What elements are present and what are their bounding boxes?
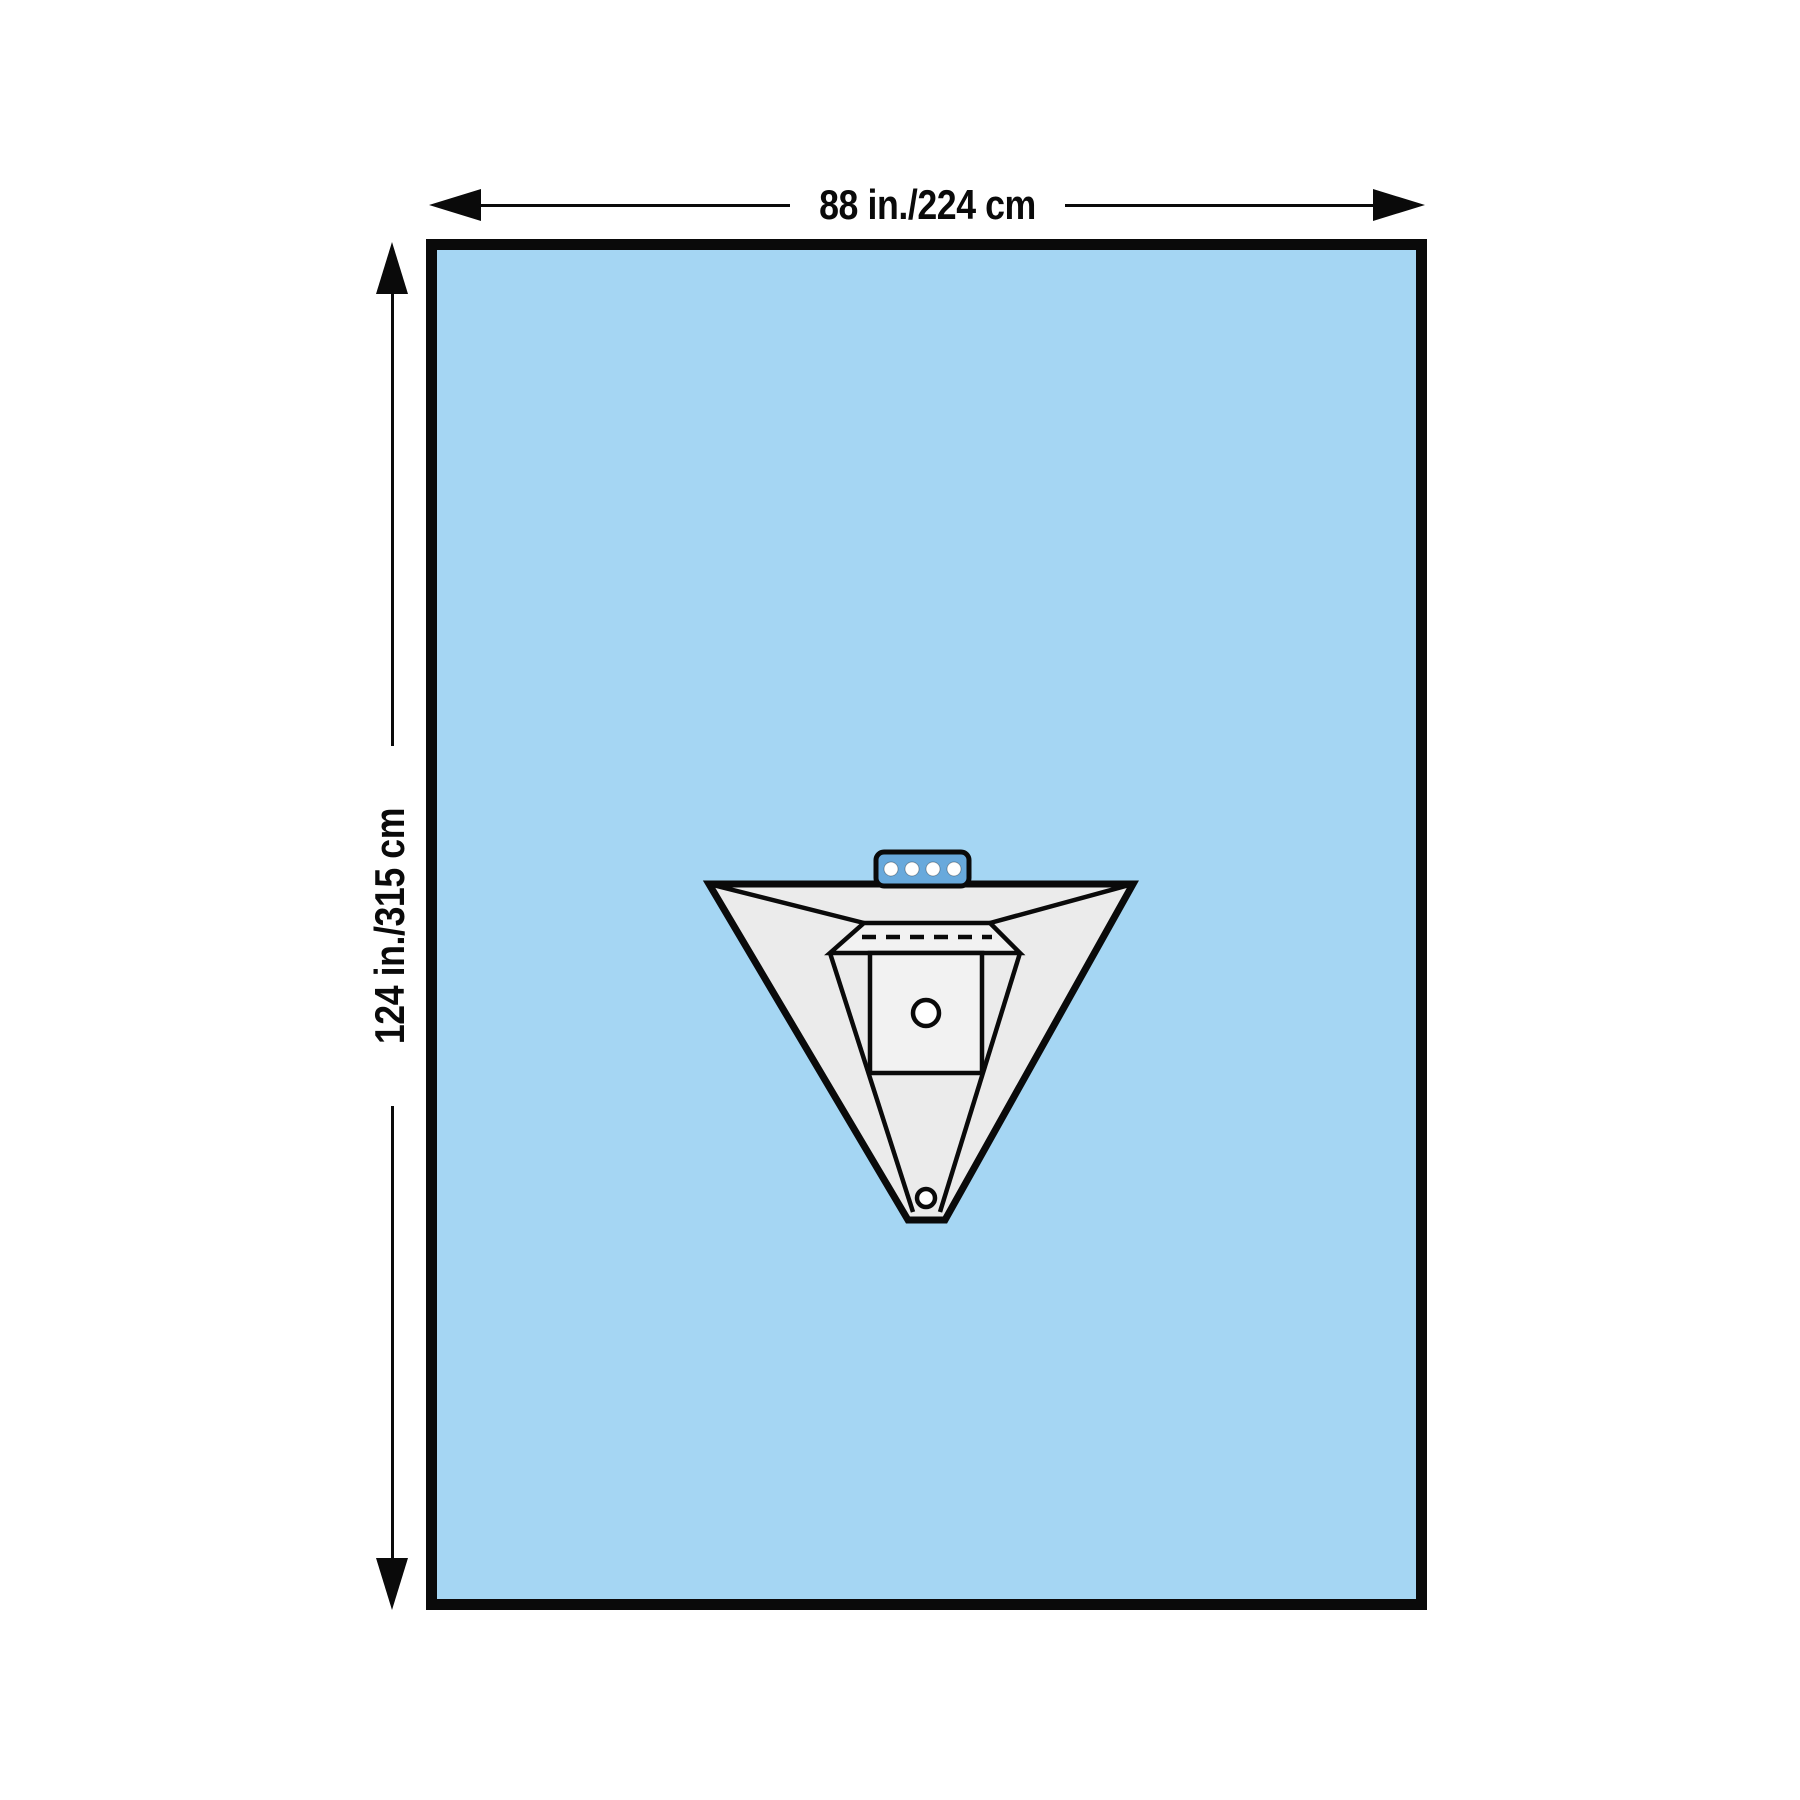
height-dimension-label: 124 in./315 cm [374,746,410,1106]
tab-hole-icon [905,862,919,876]
dimension-line [1065,204,1374,207]
arrow-right-icon [1373,189,1425,221]
fluid-collection-pouch [680,835,1150,1230]
arrow-down-icon [376,1558,408,1610]
drain-port-icon [917,1189,935,1207]
arrow-up-icon [376,242,408,294]
tab-hole-icon [926,862,940,876]
fenestration-hole-icon [913,1000,939,1026]
diagram-canvas: 88 in./224 cm 124 in./315 cm [0,0,1800,1800]
dimension-line [481,204,790,207]
width-dimension-text: 88 in./224 cm [819,185,1036,225]
tab-hole-icon [884,862,898,876]
dimension-line [391,1106,394,1558]
width-dimension-label: 88 in./224 cm [790,185,1065,225]
arrow-left-icon [429,189,481,221]
height-dimension: 124 in./315 cm [374,242,410,1610]
dimension-line [391,294,394,746]
height-dimension-text: 124 in./315 cm [370,808,410,1044]
tab-hole-icon [947,862,961,876]
width-dimension: 88 in./224 cm [429,185,1425,225]
